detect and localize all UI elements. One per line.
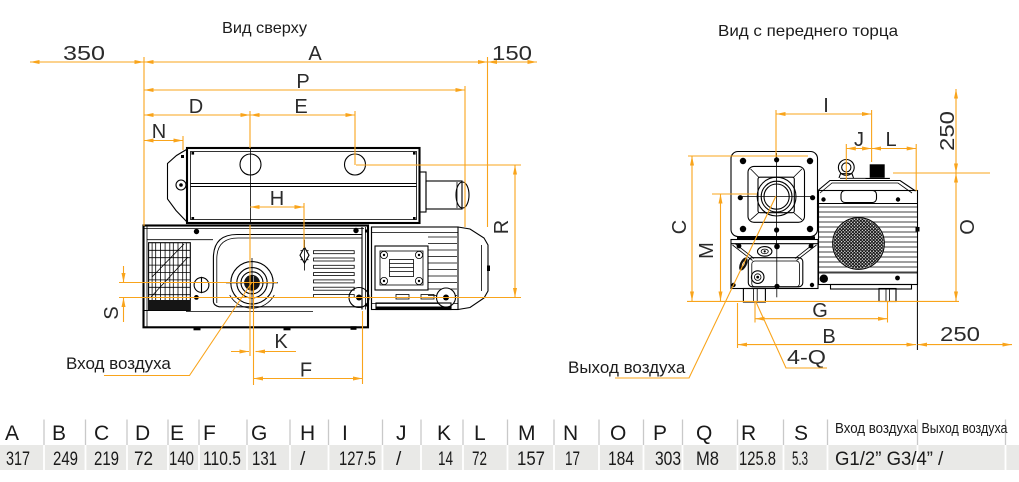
svg-text:250: 250 [940,324,980,346]
svg-text:157: 157 [517,449,545,470]
svg-text:I: I [823,95,829,117]
svg-text:D: D [189,96,203,118]
svg-text:72: 72 [472,449,487,470]
svg-text:350: 350 [63,43,105,65]
svg-text:H: H [300,422,315,445]
svg-text:5.3: 5.3 [792,449,808,470]
svg-text:S: S [101,306,123,319]
svg-text:J: J [854,129,864,151]
svg-text:131: 131 [252,449,277,470]
svg-text:Выход воздуха: Выход воздуха [922,421,1009,437]
svg-text:G1/2” G3/4”: G1/2” G3/4” [835,449,933,470]
svg-text:O: O [610,422,626,445]
svg-text:249: 249 [53,449,78,470]
svg-text:4-Q: 4-Q [787,347,826,369]
svg-text:A: A [308,43,322,65]
svg-text:F: F [300,360,312,382]
svg-text:P: P [296,71,309,93]
svg-text:I: I [342,422,348,445]
svg-text:Вход воздуха: Вход воздуха [835,421,918,437]
svg-text:250: 250 [937,111,959,151]
svg-text:219: 219 [94,449,119,470]
svg-text:72: 72 [134,449,153,470]
svg-text:B: B [52,422,66,445]
svg-text:E: E [294,96,307,118]
svg-text:/: / [938,449,944,470]
svg-text:127.5: 127.5 [339,449,376,470]
svg-text:L: L [474,422,486,445]
svg-text:317: 317 [6,449,30,470]
svg-text:Вход воздуха: Вход воздуха [66,354,171,373]
svg-text:N: N [563,422,578,445]
svg-text:D: D [135,422,150,445]
svg-text:E: E [170,422,184,445]
svg-text:184: 184 [608,449,634,470]
svg-text:Выход воздуха: Выход воздуха [568,358,686,377]
svg-text:110.5: 110.5 [203,449,241,470]
svg-text:R: R [741,422,756,445]
svg-text:/: / [396,449,402,470]
svg-text:N: N [152,121,166,143]
svg-text:G: G [812,300,828,322]
svg-text:M: M [518,422,536,445]
svg-text:J: J [396,422,407,445]
svg-text:O: O [957,219,979,235]
svg-text:A: A [5,422,19,445]
svg-text:S: S [794,422,808,445]
svg-text:Вид сверху: Вид сверху [222,20,307,37]
svg-text:125.8: 125.8 [739,449,776,470]
svg-text:150: 150 [492,43,532,65]
svg-text:R: R [491,220,513,234]
svg-text:L: L [885,129,896,151]
svg-text:Вид с переднего торца: Вид с переднего торца [718,23,898,40]
svg-text:C: C [94,422,109,445]
svg-text:F: F [203,422,216,445]
svg-text:C: C [669,220,691,234]
svg-text:M: M [696,242,718,259]
svg-text:K: K [274,331,288,353]
svg-text:14: 14 [438,449,453,470]
svg-text:/: / [300,449,306,470]
svg-text:Q: Q [696,422,712,445]
svg-text:B: B [822,326,835,348]
svg-text:P: P [653,422,667,445]
svg-text:303: 303 [655,449,681,470]
svg-text:H: H [270,188,284,210]
svg-text:K: K [437,422,451,445]
svg-text:G: G [251,422,267,445]
svg-text:M8: M8 [696,449,719,470]
svg-text:17: 17 [565,449,580,470]
svg-text:140: 140 [169,449,194,470]
